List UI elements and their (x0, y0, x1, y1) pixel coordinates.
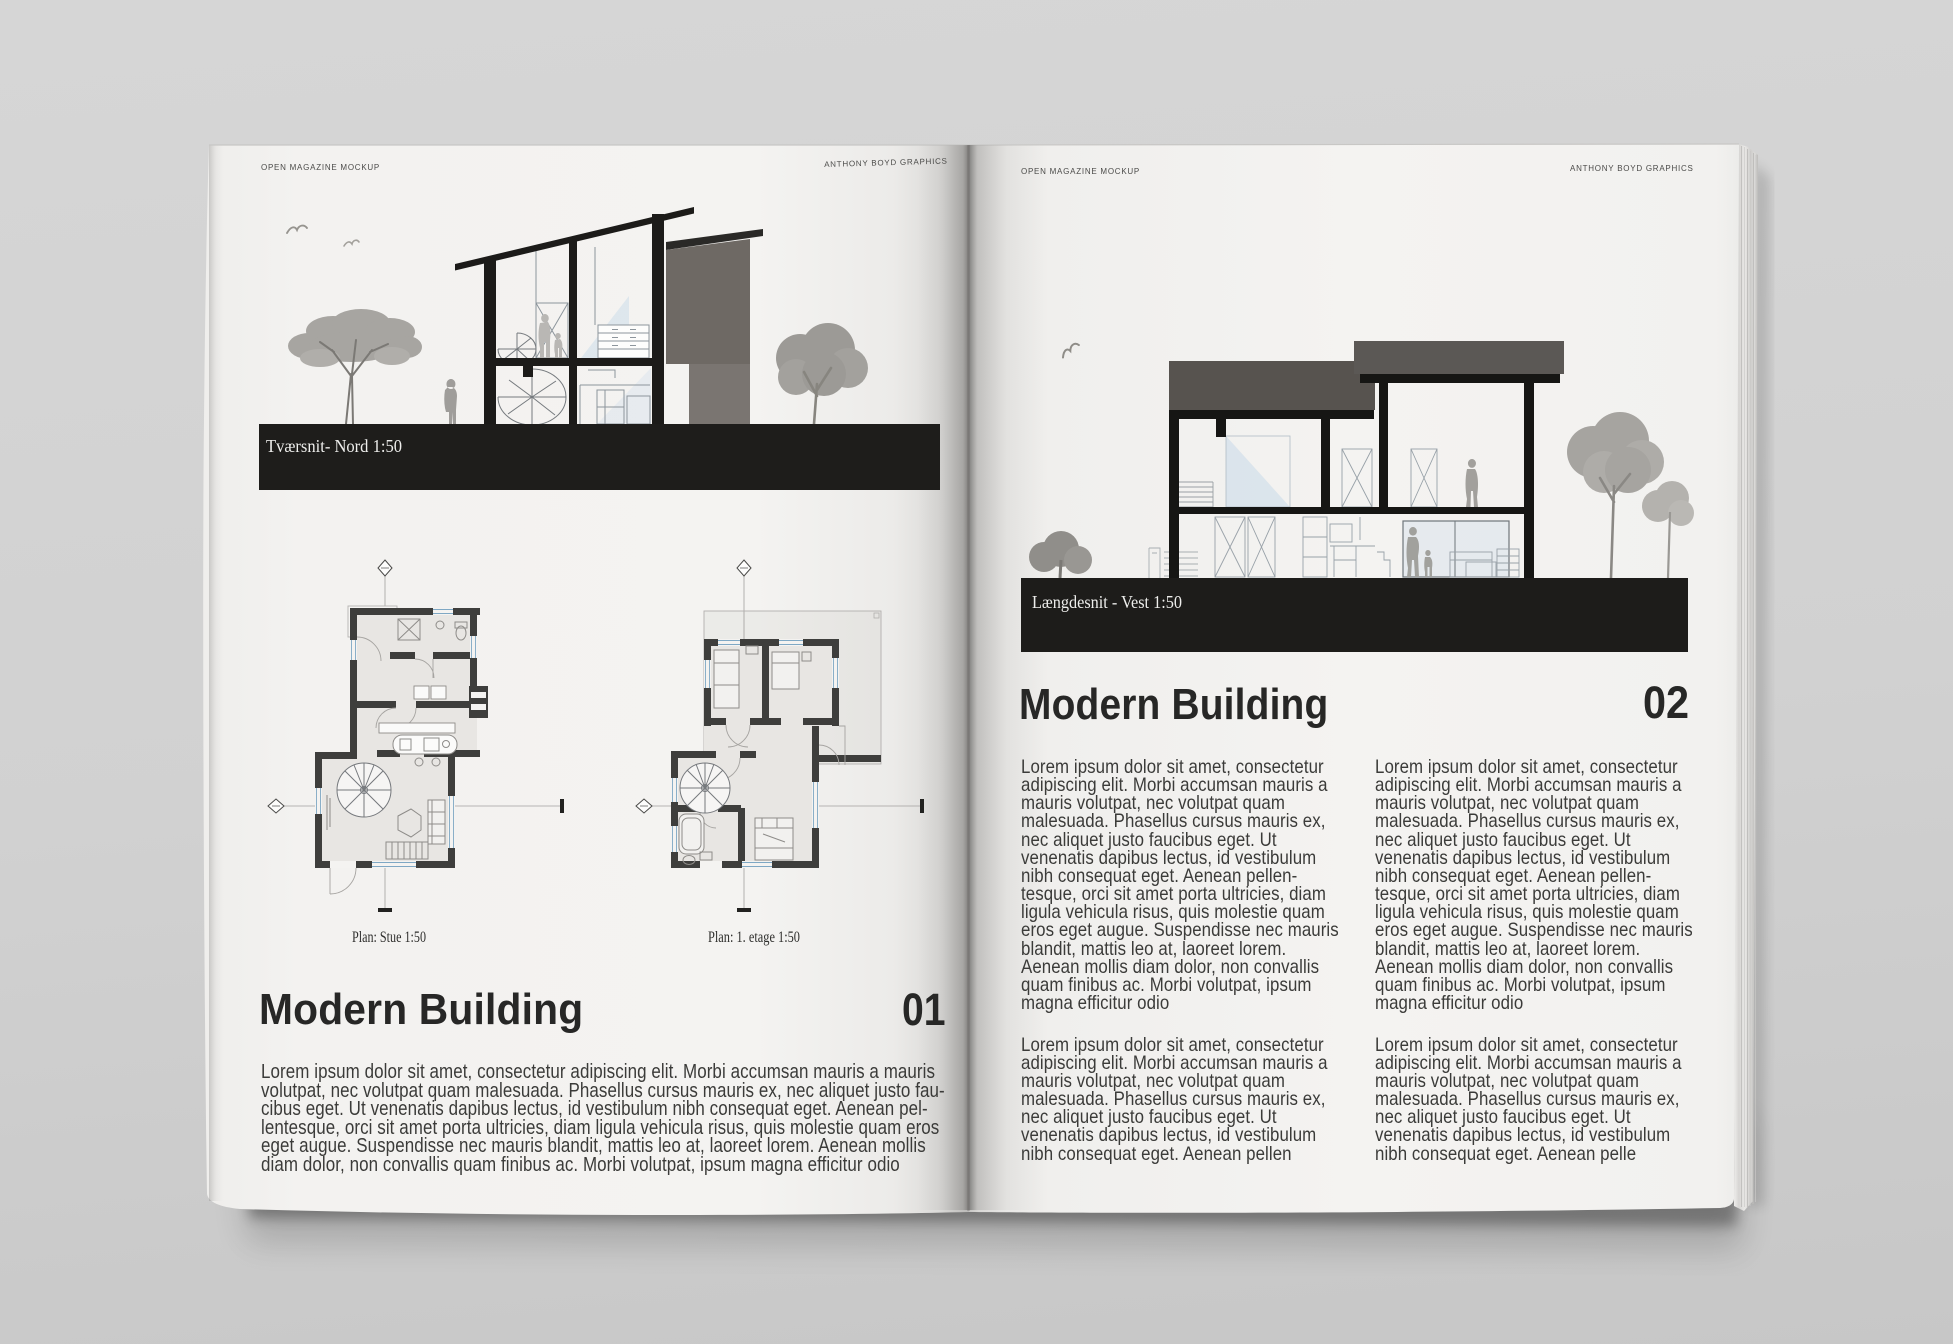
svg-text:Tværsnit- Nord 1:50: Tværsnit- Nord 1:50 (266, 436, 402, 456)
svg-text:Plan: 1. etage 1:50: Plan: 1. etage 1:50 (708, 929, 800, 946)
svg-text:Plan: Stue 1:50: Plan: Stue 1:50 (352, 929, 426, 946)
svg-text:Længdesnit - Vest 1:50: Længdesnit - Vest 1:50 (1032, 592, 1182, 612)
